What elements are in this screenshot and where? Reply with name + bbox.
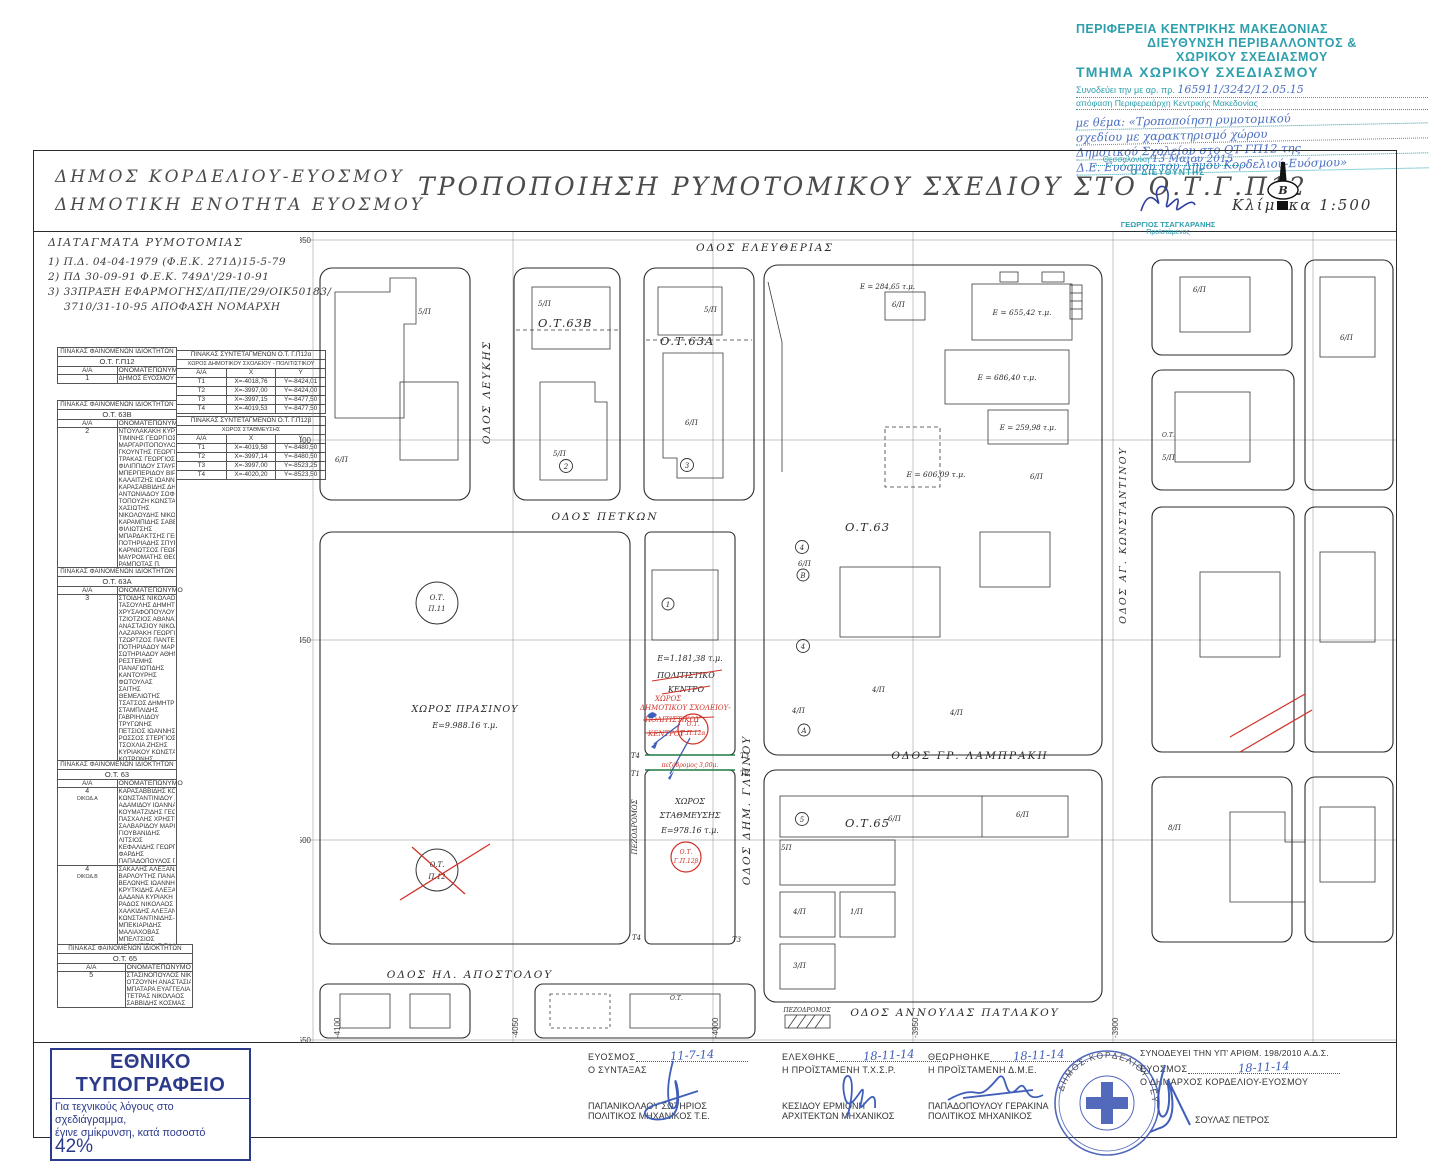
- stamp-text: ΔΗΜΟΣ ΚΟΡΔΕΛΙΟΥ - ΕΥΟΣΜΟΥ: [1040, 1040, 1160, 1103]
- decrees-list: 1) Π.Δ. 04-04-1979 (Φ.Ε.Κ. 271Δ)15-5-792…: [48, 255, 331, 315]
- municipality-line2: ΔΗΜΟΤΙΚΗ ΕΝΟΤΗΤΑ ΕΥΟΣΜΟΥ: [55, 191, 425, 219]
- svg-text:4/Π: 4/Π: [792, 908, 807, 916]
- approval-date-handwritten: 13 Μαΐου 2015: [1152, 153, 1233, 165]
- protocol-label: Συνοδεύει την με αρ. πρ.: [1076, 85, 1175, 95]
- svg-text:6/Π: 6/Π: [892, 301, 906, 309]
- owner-names: ΔΗΜΟΣ ΕΥΟΣΜΟΥ: [117, 375, 177, 384]
- svg-text:Ε=9.988.16 τ.μ.: Ε=9.988.16 τ.μ.: [431, 721, 497, 730]
- protocol-number-handwritten: 165911/3242/12.05.15: [1177, 83, 1303, 96]
- block-ot-small: Ο.Τ.: [670, 995, 683, 1002]
- reduction-percentage: 42%: [55, 1136, 93, 1157]
- svg-text:5: 5: [800, 816, 805, 824]
- svg-text:8/Π: 8/Π: [1168, 824, 1182, 832]
- svg-text:Ε = 259,98 τ.μ.: Ε = 259,98 τ.μ.: [999, 423, 1057, 432]
- owner-names: ΣΤΟΪΔΗΣ ΝΙΚΟΛΑΟΣΤΑΣΟΥΛΗΣ ΔΗΜΗΤΡΙΟΣΧΡΥΣΑΦ…: [117, 595, 177, 764]
- svg-text:6/Π: 6/Π: [1340, 334, 1354, 342]
- printing-office-title: ΕΘΝΙΚΟ ΤΥΠΟΓΡΑΦΕΙΟ: [52, 1050, 249, 1099]
- pezodromos-small-label: ΠΕΖΟΔΡΟΜΟΣ: [782, 1007, 831, 1014]
- approval-place: Θεσσαλονίκη: [1103, 155, 1150, 164]
- red-correction-marks: [1230, 694, 1312, 752]
- svg-text:Ο.Τ.: Ο.Τ.: [680, 849, 693, 856]
- block-labels: Ο.Τ.63Β Ο.Τ.63Α Ο.Τ.63 Ο.Τ.65 Ο.Τ. Ο.Τ.: [538, 316, 1175, 1002]
- svg-text:6/Π: 6/Π: [335, 456, 349, 464]
- svg-text:-8400: -8400: [300, 436, 312, 445]
- stamp-line: ΔΙΕΥΘΥΝΣΗ ΠΕΡΙΒΑΛΛΟΝΤΟΣ &: [1076, 36, 1428, 50]
- svg-text:-8350: -8350: [300, 236, 312, 245]
- owner-names: ΣΑΚΑΛΗΣ ΑΛΕΞΑΝΔΡΟΣΒΑΡΛΟΥΤΗΣ ΠΑΝΑΓΙΩΤΗΣΒΕ…: [117, 866, 177, 951]
- svg-text:ΣΤΑΘΜΕΥΣΗΣ: ΣΤΑΘΜΕΥΣΗΣ: [659, 811, 721, 820]
- svg-text:Ε = 686,40 τ.μ.: Ε = 686,40 τ.μ.: [977, 373, 1037, 382]
- svg-text:πεζόδρομος 3,00μ.: πεζόδρομος 3,00μ.: [661, 762, 719, 769]
- owners-table-63: ΠΙΝΑΚΑΣ ΦΑΙΝΟΜΕΝΩΝ ΙΔΙΟΚΤΗΤΩΝ Ο.Τ. 63 Α/…: [57, 760, 177, 951]
- svg-text:ΧΩΡΟΣ: ΧΩΡΟΣ: [674, 797, 705, 806]
- municipal-round-stamp: ΔΗΜΟΣ ΚΟΡΔΕΛΙΟΥ - ΕΥΟΣΜΟΥ: [1040, 1040, 1175, 1166]
- stamp-line: απόφαση Περιφερειάρχη Κεντρικής Μακεδονί…: [1076, 98, 1428, 110]
- svg-text:5/Π: 5/Π: [1162, 454, 1176, 462]
- drawing-sheet: ΠΕΡΙΦΕΡΕΙΑ ΚΕΝΤΡΙΚΗΣ ΜΑΚΕΔΟΝΙΑΣ ΔΙΕΥΘΥΝΣ…: [0, 0, 1431, 1166]
- svg-text:6/Π: 6/Π: [1016, 811, 1030, 819]
- street-pezodromos: ΠΕΖΟΔΡΟΜΟΣ: [631, 799, 639, 855]
- svg-text:5/Π: 5/Π: [538, 300, 552, 308]
- svg-text:Γ.Π.12β: Γ.Π.12β: [673, 858, 699, 865]
- svg-text:6/Π: 6/Π: [798, 560, 812, 568]
- svg-text:Τ4: Τ4: [632, 934, 641, 942]
- svg-text:6/Π: 6/Π: [1193, 286, 1207, 294]
- stamp-line: ΧΩΡΙΚΟΥ ΣΧΕΔΙΑΣΜΟΥ: [1076, 50, 1428, 64]
- parking-block-annotations: ΧΩΡΟΣ ΣΤΑΘΜΕΥΣΗΣ Ε=978.16 τ.μ. Ο.Τ. Γ.Π.…: [632, 797, 742, 944]
- north-letter: Β: [1277, 184, 1287, 197]
- owner-names: ΝΤΟΥΛΑΚΑΚΗ ΚΥΡΙΑΚΗΤΙΜΙΝΗΣ ΓΕΩΡΓΙΟΣΜΑΡΓΑΡ…: [117, 428, 177, 569]
- green-space-labels: ΧΩΡΟΣ ΠΡΑΣΙΝΟΥ Ε=9.988.16 τ.μ.: [411, 704, 520, 730]
- decrees-title: ΔΙΑΤΑΓΜΑΤΑ ΡΥΜΟΤΟΜΙΑΣ: [48, 236, 331, 249]
- approval-name: ΓΕΩΡΓΙΟΣ ΤΣΑΓΚΑΡΑΝΗΣ: [1093, 220, 1243, 229]
- svg-text:Β: Β: [799, 572, 805, 580]
- svg-text:Τ2: Τ2: [740, 770, 750, 778]
- street-eleftherias: ΟΔΟΣ ΕΛΕΥΘΕΡΙΑΣ: [696, 242, 834, 254]
- svg-text:4/Π: 4/Π: [949, 709, 964, 717]
- svg-text:-8550: -8550: [300, 1036, 312, 1045]
- svg-text:Ε = 606,09 τ.μ.: Ε = 606,09 τ.μ.: [906, 470, 966, 479]
- table-title: ΠΙΝΑΚΑΣ ΦΑΙΝΟΜΕΝΩΝ ΙΔΙΟΚΤΗΤΩΝ: [58, 348, 177, 357]
- street-annoulas-patlakou: ΟΔΟΣ ΑΝΝΟΥΛΑΣ ΠΑΤΛΑΚΟΥ: [850, 1007, 1059, 1019]
- signature-block-author: ΕΥΟΣΜΟΣ 11-7-14 Ο ΣΥΝΤΑΞΑΣ ΠΑΠΑΝΙΚΟΛΑΟΥ …: [588, 1048, 758, 1121]
- svg-text:4: 4: [799, 544, 804, 552]
- stamp-line: ΤΜΗΜΑ ΧΩΡΙΚΟΥ ΣΧΕΔΙΑΣΜΟΥ: [1076, 64, 1428, 80]
- svg-text:5Π: 5Π: [781, 844, 792, 852]
- svg-text:-4000: -4000: [711, 1017, 720, 1038]
- owners-table-65: ΠΙΝΑΚΑΣ ΦΑΙΝΟΜΕΝΩΝ ΙΔΙΟΚΤΗΤΩΝ Ο.Τ. 65 Α/…: [57, 944, 193, 1008]
- zoning-decrees: ΔΙΑΤΑΓΜΑΤΑ ΡΥΜΟΤΟΜΙΑΣ 1) Π.Δ. 04-04-1979…: [48, 236, 331, 315]
- svg-text:3: 3: [685, 462, 690, 470]
- svg-text:Ε=978.16 τ.μ.: Ε=978.16 τ.μ.: [660, 826, 719, 835]
- ot-p12-circle-crossed: Ο.Τ. Π.12: [400, 844, 490, 900]
- stamp-line: ΠΕΡΙΦΕΡΕΙΑ ΚΕΝΤΡΙΚΗΣ ΜΑΚΕΔΟΝΙΑΣ: [1076, 22, 1428, 36]
- block-ot-small: Ο.Τ.: [1162, 432, 1175, 439]
- svg-text:Ο.Τ.: Ο.Τ.: [687, 721, 700, 728]
- svg-text:4: 4: [800, 643, 805, 651]
- svg-text:1: 1: [666, 601, 670, 609]
- svg-text:4/Π: 4/Π: [871, 686, 886, 694]
- council-decision-note: ΣΥΝΟΔΕΥΕΙ ΤΗΝ ΥΠ' ΑΡΙΘΜ. 198/2010 Α.Δ.Σ.: [1140, 1048, 1396, 1058]
- svg-text:Ο.Τ.: Ο.Τ.: [430, 594, 445, 602]
- svg-text:3/Π: 3/Π: [793, 962, 807, 970]
- approval-date-line: Θεσσαλονίκη 13 Μαΐου 2015: [1093, 153, 1243, 166]
- block-ot63b: Ο.Τ.63Β: [538, 316, 593, 330]
- svg-text:6/Π: 6/Π: [685, 419, 699, 427]
- director-approval-stamp: Θεσσαλονίκη 13 Μαΐου 2015 Ο ΔΙΕΥΘΥΝΤΗΣ Γ…: [1093, 153, 1243, 236]
- svg-text:-8450: -8450: [300, 636, 312, 645]
- table-block-label: Ο.Τ. Γ.Π12: [58, 356, 177, 366]
- street-il-apostolou: ΟΔΟΣ ΗΛ. ΑΠΟΣΤΟΛΟΥ: [387, 969, 553, 981]
- street-lambraki: ΟΔΟΣ ΓΡ. ΛΑΜΠΡΑΚΗ: [891, 750, 1048, 762]
- ot-p11-circle: Ο.Τ. Π.11: [416, 582, 458, 624]
- svg-text:Τ1: Τ1: [631, 770, 640, 778]
- svg-text:ΔΗΜΟΣ ΚΟΡΔΕΛΙΟΥ - ΕΥΟΣΜΟΥ: ΔΗΜΟΣ ΚΟΡΔΕΛΙΟΥ - ΕΥΟΣΜΟΥ: [1040, 1040, 1160, 1103]
- city-plan-map: -8350 -8400 -8450 -8500 -8550 -4100 -405…: [300, 232, 1400, 1045]
- svg-text:6/Π: 6/Π: [888, 815, 902, 823]
- svg-text:Γ.Π.12α: Γ.Π.12α: [680, 730, 706, 737]
- approval-role: Ο ΔΙΕΥΘΥΝΤΗΣ: [1093, 167, 1243, 177]
- svg-text:ΧΩΡΟΣ: ΧΩΡΟΣ: [654, 695, 681, 703]
- svg-text:ΧΩΡΟΣ ΠΡΑΣΙΝΟΥ: ΧΩΡΟΣ ΠΡΑΣΙΝΟΥ: [411, 704, 520, 715]
- north-arrow-icon: Β: [1258, 160, 1310, 212]
- svg-text:Α: Α: [800, 727, 806, 735]
- svg-text:ΔΗΜΟΤΙΚΟΥ ΣΧΟΛΕΙΟΥ-: ΔΗΜΟΤΙΚΟΥ ΣΧΟΛΕΙΟΥ-: [639, 704, 731, 712]
- signature-block-mayor: ΣΥΝΟΔΕΥΕΙ ΤΗΝ ΥΠ' ΑΡΙΘΜ. 198/2010 Α.Δ.Σ.…: [1140, 1048, 1396, 1125]
- owner-names: ΣΤΑΣΙΝΟΠΟΥΛΟΣ ΝΙΚΟΛΑΟΣΟΤΖΟΥΝΗ ΑΝΑΣΤΑΣΙΑΜ…: [125, 972, 193, 1008]
- svg-text:5/Π: 5/Π: [553, 450, 567, 458]
- grid-labels-y: -8350 -8400 -8450 -8500 -8550: [300, 236, 312, 1045]
- municipality-title: ΔΗΜΟΣ ΚΟΡΔΕΛΙΟΥ-ΕΥΟΣΜΟΥ ΔΗΜΟΤΙΚΗ ΕΝΟΤΗΤΑ…: [55, 163, 425, 219]
- block-ot65: Ο.Τ.65: [845, 816, 890, 830]
- svg-text:Ε=1.181,38 τ.μ.: Ε=1.181,38 τ.μ.: [656, 654, 722, 663]
- svg-text:-4100: -4100: [333, 1017, 342, 1038]
- tpoint-lines: Τ4 Τ3 Τ1 Τ2 πεζόδρομος 3,00μ.: [631, 752, 750, 778]
- svg-text:Τ3: Τ3: [732, 936, 742, 944]
- protocol-reference: Συνοδεύει την με αρ. πρ. 165911/3242/12.…: [1076, 83, 1428, 98]
- svg-text:2: 2: [563, 463, 569, 471]
- svg-text:1/Π: 1/Π: [850, 908, 864, 916]
- svg-text:6/Π: 6/Π: [1030, 473, 1044, 481]
- svg-text:Τ4: Τ4: [631, 752, 640, 760]
- municipality-line1: ΔΗΜΟΣ ΚΟΡΔΕΛΙΟΥ-ΕΥΟΣΜΟΥ: [55, 163, 425, 191]
- owners-table-63a: ΠΙΝΑΚΑΣ ΦΑΙΝΟΜΕΝΩΝ ΙΔΙΟΚΤΗΤΩΝ Ο.Τ. 63Α Α…: [57, 567, 177, 764]
- svg-text:5/Π: 5/Π: [418, 308, 432, 316]
- svg-text:-4050: -4050: [511, 1017, 520, 1038]
- street-petkon: ΟΔΟΣ ΠΕΤΚΩΝ: [551, 511, 658, 523]
- svg-text:Ε = 655,42 τ.μ.: Ε = 655,42 τ.μ.: [992, 308, 1052, 317]
- street-lefkis: ΟΔΟΣ ΛΕΥΚΗΣ: [481, 340, 493, 444]
- owner-names: ΚΑΡΑΣΑΒΒΙΔΗΣ ΚΟΣΜΑΣΚΩΝΣΤΑΝΤΙΝΙΔΟΥ ΧΡΥΣΑΑ…: [117, 788, 177, 866]
- printing-office-note: Για τεχνικούς λόγους στο σχεδιάγραμμα, έ…: [52, 1099, 249, 1159]
- street-ag-konstantinou: ΟΔΟΣ ΑΓ. ΚΩΝΣΤΑΝΤΙΝΟΥ: [1118, 446, 1129, 624]
- svg-text:-3900: -3900: [1111, 1017, 1120, 1038]
- svg-text:Ε = 284,65 τ.μ.: Ε = 284,65 τ.μ.: [859, 283, 915, 291]
- signature-block-checked: ΕΛΕΧΘΗΚΕ 18-11-14 Η ΠΡΟΪΣΤΑΜΕΝΗ Τ.Χ.Σ.Ρ.…: [782, 1048, 952, 1121]
- svg-text:Π.11: Π.11: [427, 605, 445, 613]
- block-ot63: Ο.Τ.63: [845, 520, 890, 534]
- owners-table-gp12: ΠΙΝΑΚΑΣ ΦΑΙΝΟΜΕΝΩΝ ΙΔΙΟΚΤΗΤΩΝ Ο.Τ. Γ.Π12…: [57, 347, 177, 384]
- svg-text:-8500: -8500: [300, 836, 312, 845]
- block-ot63a: Ο.Τ.63Α: [660, 334, 714, 348]
- svg-text:4/Π: 4/Π: [791, 707, 806, 715]
- svg-text:-3950: -3950: [911, 1017, 920, 1038]
- grid-labels-x: -4100 -4050 -4000 -3950 -3900: [333, 1017, 1120, 1038]
- national-printing-office-box: ΕΘΝΙΚΟ ΤΥΠΟΓΡΑΦΕΙΟ Για τεχνικούς λόγους …: [50, 1048, 251, 1161]
- svg-text:Τ3: Τ3: [740, 752, 750, 760]
- director-signature-scribble: [1133, 177, 1203, 219]
- street-labels: ΟΔΟΣ ΕΛΕΥΘΕΡΙΑΣ ΟΔΟΣ ΠΕΤΚΩΝ ΟΔΟΣ ΓΡ. ΛΑΜ…: [387, 242, 1129, 1019]
- svg-text:5/Π: 5/Π: [704, 306, 718, 314]
- owners-table-63b: ΠΙΝΑΚΑΣ ΦΑΙΝΟΜΕΝΩΝ ΙΔΙΟΚΤΗΤΩΝ Ο.Τ. 63Β Α…: [57, 400, 177, 569]
- area-labels-ot63: Ε = 284,65 τ.μ. Ε = 655,42 τ.μ. Ε = 686,…: [859, 283, 1056, 479]
